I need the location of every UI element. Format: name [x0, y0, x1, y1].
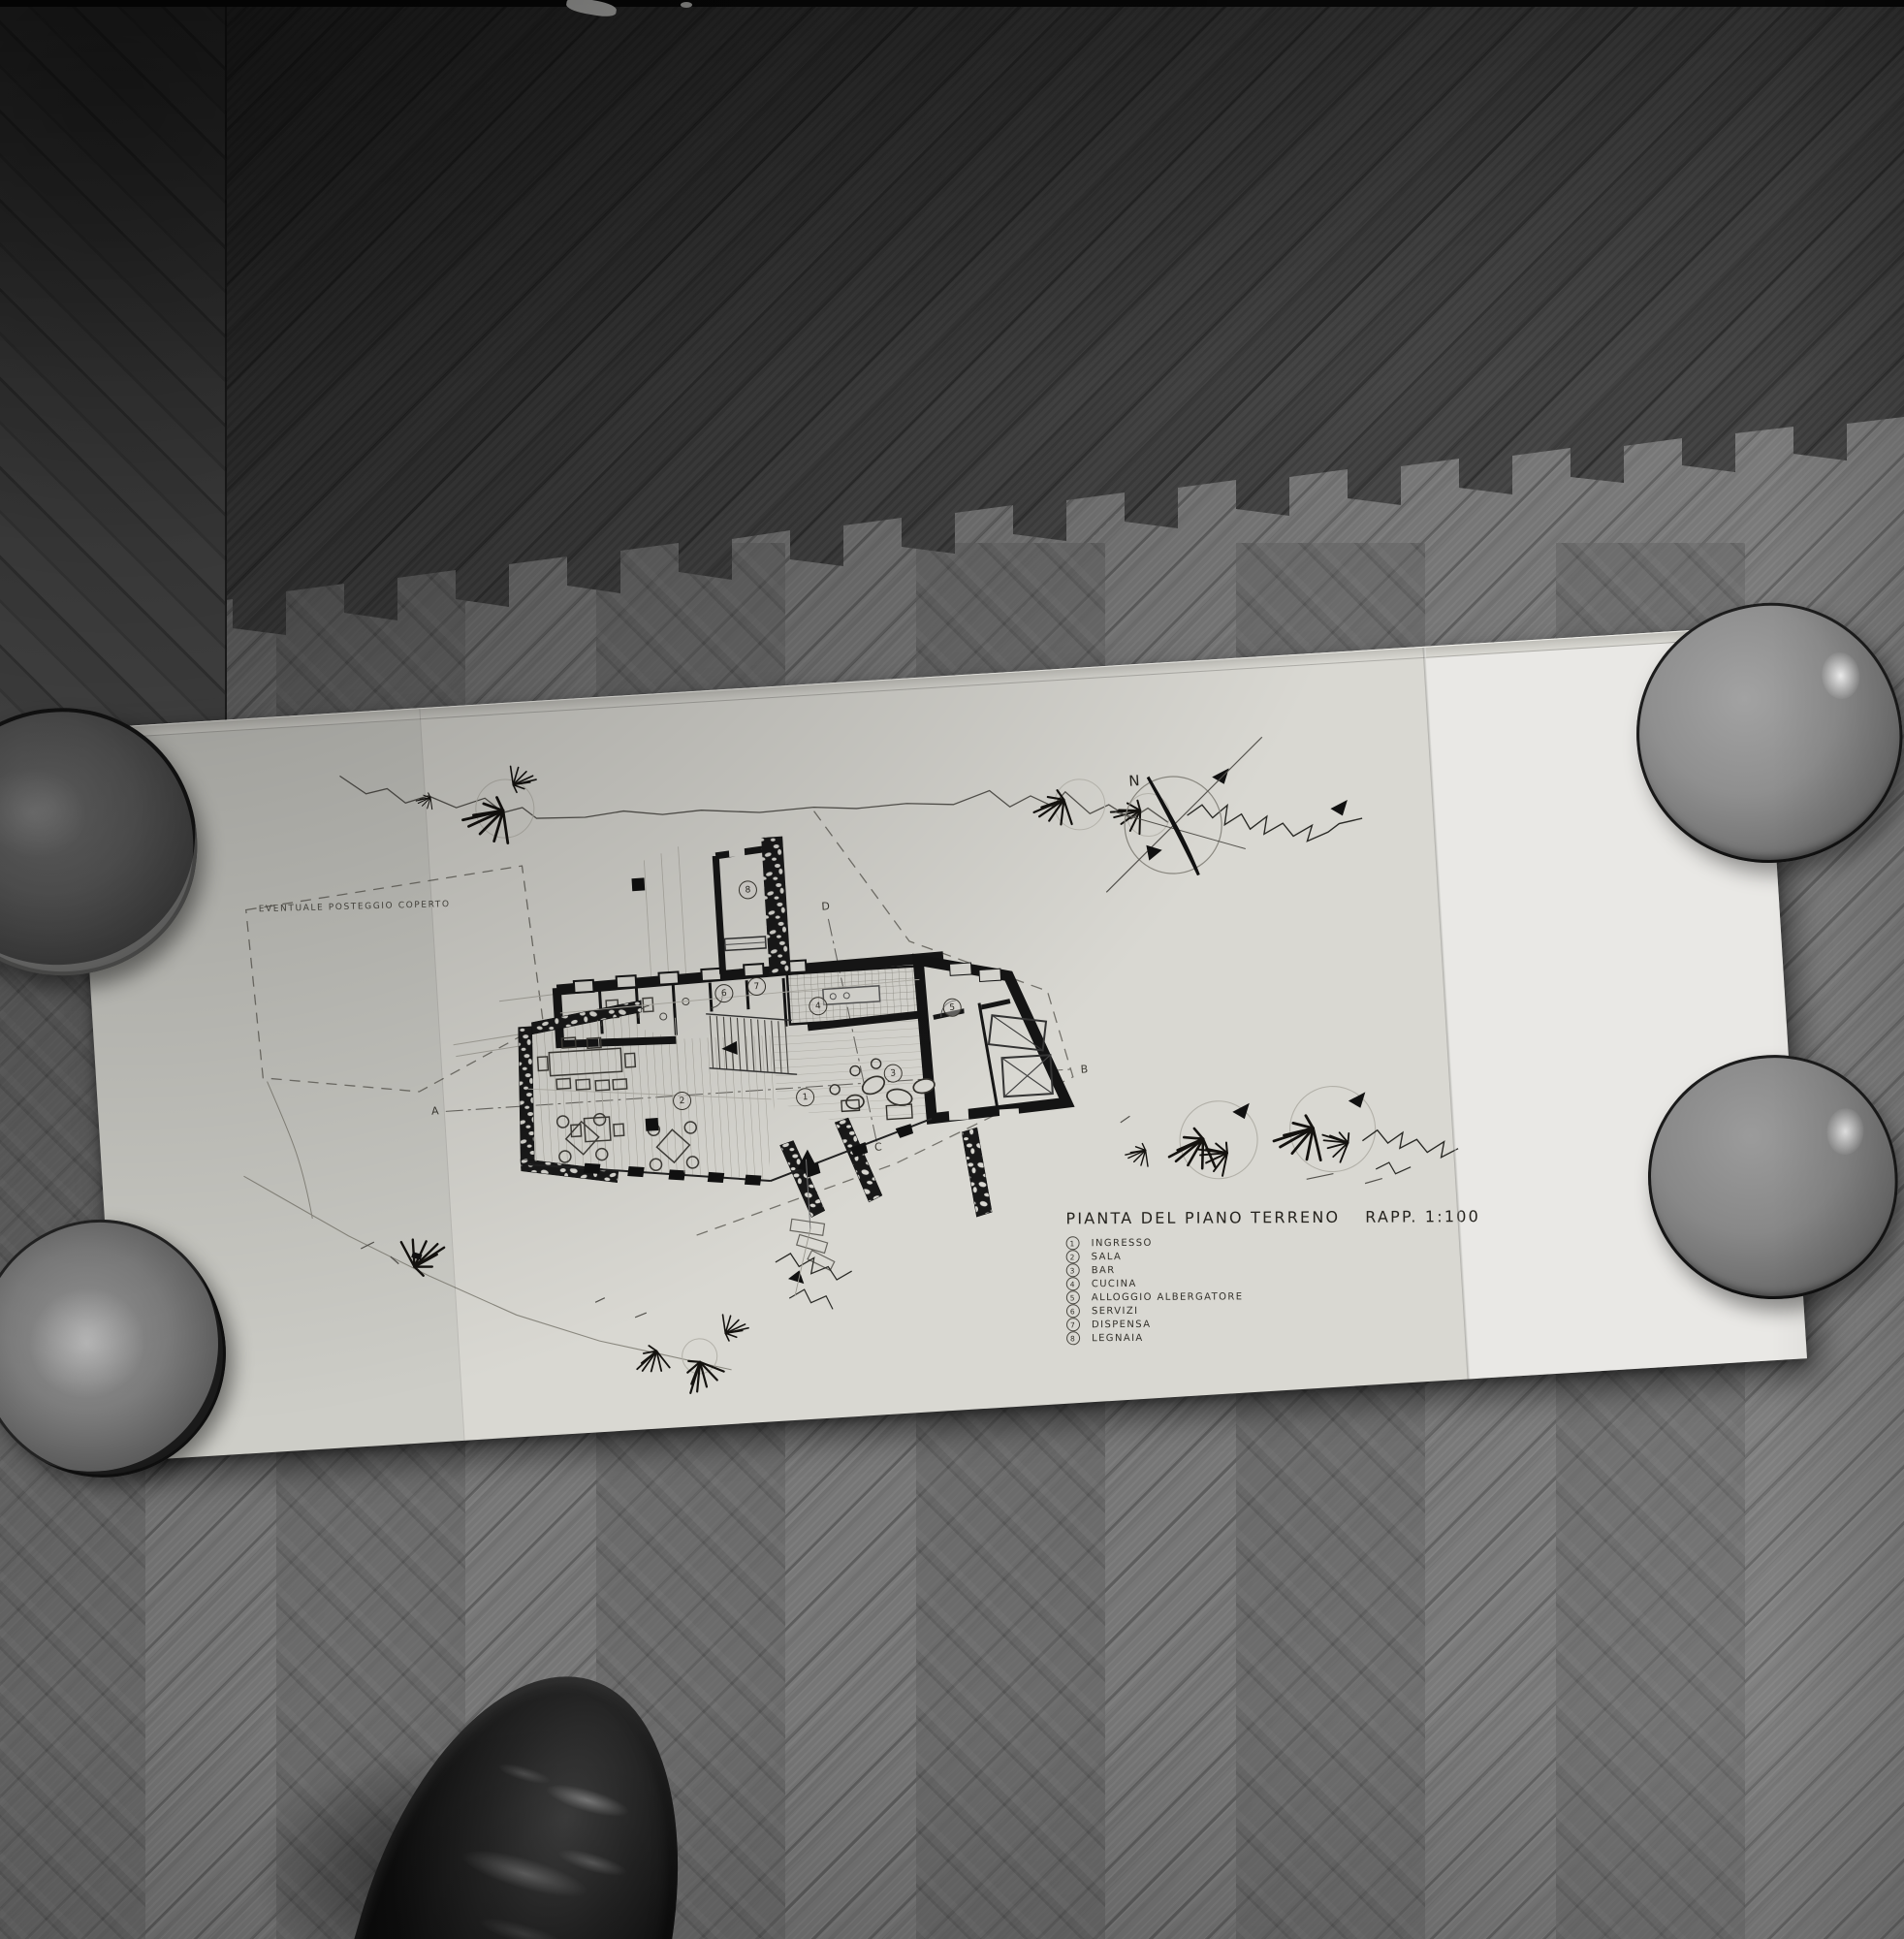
legend-row: 8LEGNAIA	[1066, 1329, 1493, 1345]
building-plan	[502, 820, 1076, 1289]
section-letter-c: C	[874, 1140, 882, 1153]
floor-plan-drawing: N	[75, 627, 1807, 1462]
terrain-contour-top	[339, 714, 1363, 900]
legend-label: SALA	[1092, 1252, 1123, 1262]
legend-label: DISPENSA	[1092, 1319, 1151, 1329]
section-letter-a: A	[431, 1104, 439, 1117]
yard-post	[631, 877, 645, 891]
entry-steps	[789, 1217, 835, 1273]
plan-title: PIANTA DEL PIANO TERRENO	[1065, 1208, 1340, 1227]
legend-label: LEGNAIA	[1092, 1332, 1144, 1343]
photo-of-floor-plan-on-parquet: N	[0, 0, 1904, 1939]
legend-label: CUCINA	[1092, 1278, 1137, 1288]
plan-scale: RAPP. 1:100	[1365, 1207, 1480, 1226]
compass-north-label: N	[1128, 772, 1140, 790]
section-letter-b: B	[1080, 1063, 1088, 1075]
legend: 1INGRESSO 2SALA 3BAR 4CUCINA 5ALLOGGIO A…	[1066, 1234, 1494, 1345]
section-letter-d: D	[821, 900, 830, 912]
legend-label: ALLOGGIO ALBERGATORE	[1092, 1291, 1244, 1303]
floor-light-speck	[681, 2, 692, 8]
legend-label: INGRESSO	[1092, 1237, 1153, 1248]
room-legnaia	[714, 837, 790, 976]
legend-label: BAR	[1092, 1265, 1116, 1276]
room-alloggio	[918, 952, 1067, 1127]
photo-top-edge	[0, 0, 1904, 7]
hall-post	[646, 1118, 659, 1131]
folded-drawing-sheet: N	[75, 626, 1807, 1462]
compass-rose: N	[1097, 737, 1271, 892]
room-bar-floor	[773, 1016, 930, 1126]
title-block: PIANTA DEL PIANO TERRENORAPP. 1:100 1ING…	[1065, 1207, 1493, 1345]
trees-right	[1119, 1079, 1460, 1198]
legend-label: SERVIZI	[1092, 1305, 1139, 1316]
